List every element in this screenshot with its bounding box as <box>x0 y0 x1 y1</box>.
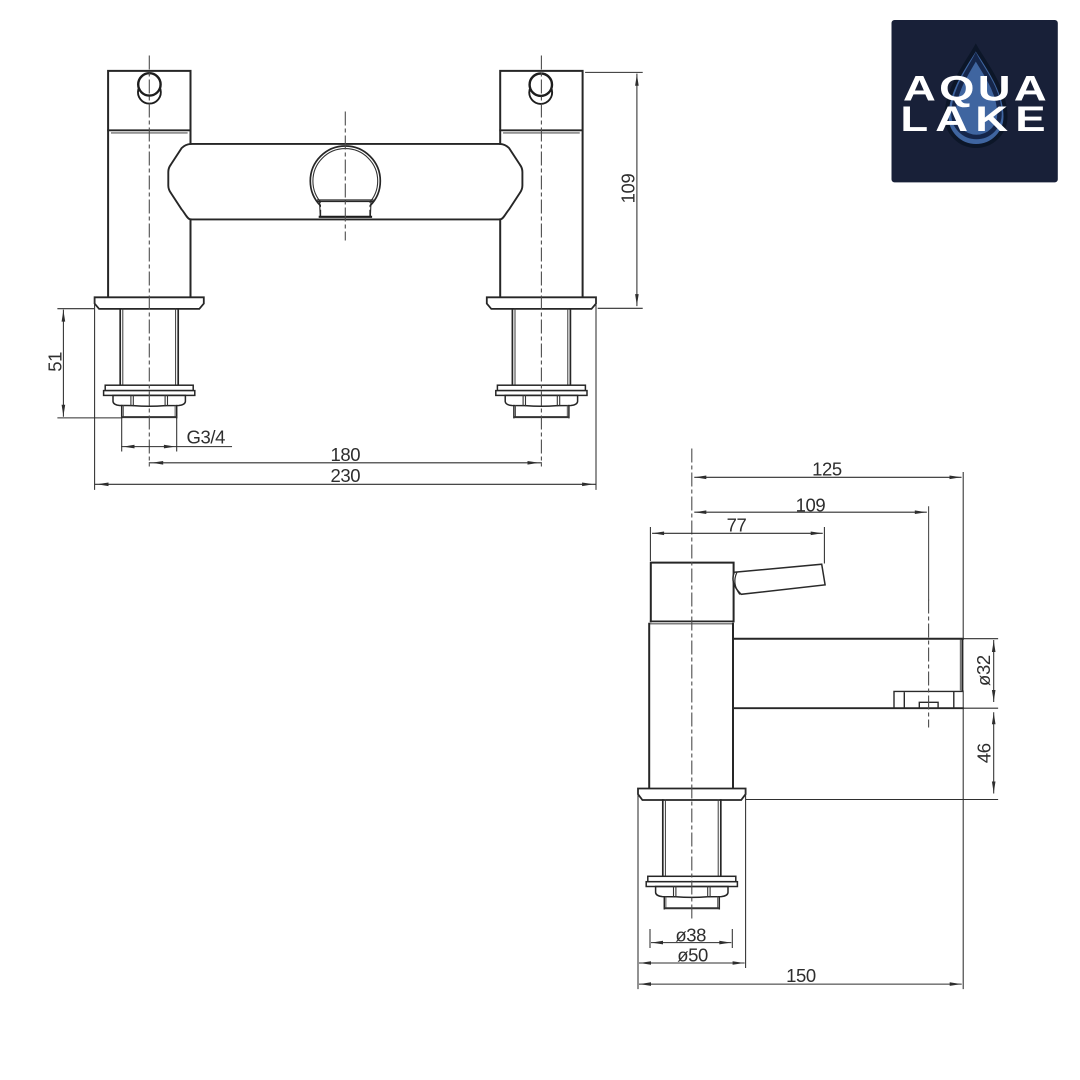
svg-text:150: 150 <box>786 965 816 986</box>
svg-text:230: 230 <box>330 465 360 486</box>
svg-text:ø38: ø38 <box>675 924 706 945</box>
svg-text:109: 109 <box>796 494 826 515</box>
svg-text:77: 77 <box>727 515 747 536</box>
svg-text:ø50: ø50 <box>677 945 708 966</box>
svg-text:G3/4: G3/4 <box>187 427 226 448</box>
svg-text:ø32: ø32 <box>973 655 994 686</box>
svg-text:46: 46 <box>973 743 994 763</box>
svg-text:LAKE: LAKE <box>900 99 1052 139</box>
svg-text:109: 109 <box>618 174 639 204</box>
svg-text:51: 51 <box>45 352 66 372</box>
svg-text:125: 125 <box>812 458 842 479</box>
svg-text:180: 180 <box>330 444 360 465</box>
